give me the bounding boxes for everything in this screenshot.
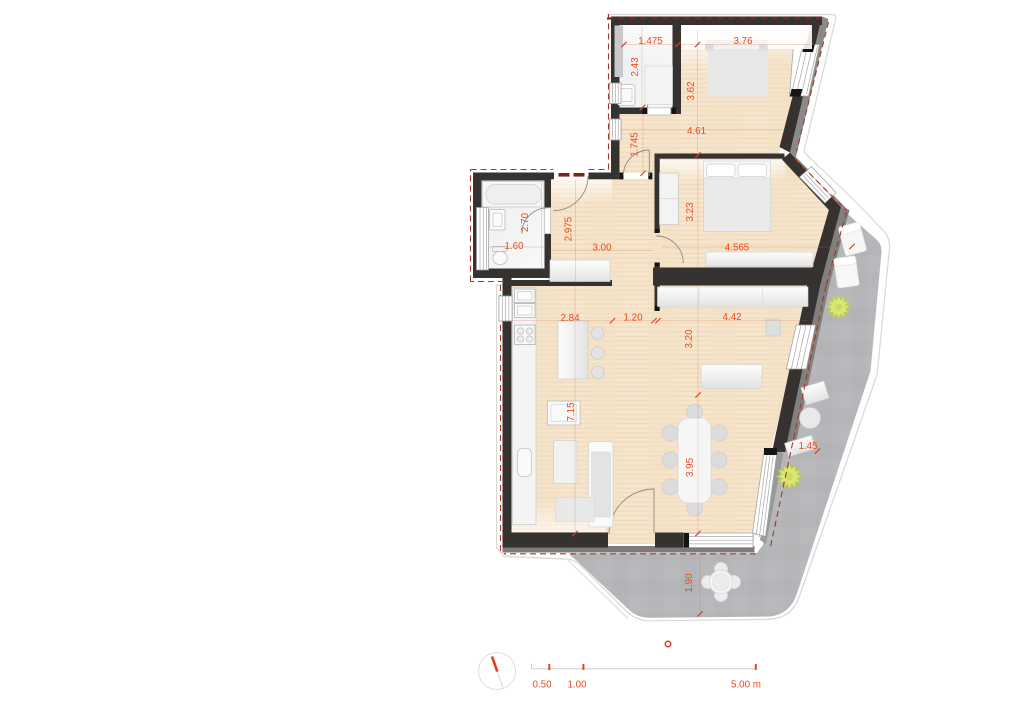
svg-text:2.975: 2.975 [564, 216, 575, 241]
svg-text:3.20: 3.20 [684, 329, 695, 349]
svg-text:3.76: 3.76 [733, 36, 753, 47]
svg-text:1.745: 1.745 [630, 132, 641, 157]
svg-text:3.00: 3.00 [592, 243, 612, 254]
svg-text:4.42: 4.42 [722, 312, 741, 323]
svg-text:4.565: 4.565 [725, 243, 750, 254]
svg-text:1.45: 1.45 [798, 441, 818, 452]
svg-text:2.43: 2.43 [630, 57, 641, 77]
svg-text:3.23: 3.23 [685, 202, 696, 222]
svg-text:1.90: 1.90 [684, 573, 695, 593]
svg-text:7.15: 7.15 [566, 402, 577, 422]
svg-text:3.95: 3.95 [685, 457, 696, 477]
svg-text:1.20: 1.20 [623, 313, 643, 324]
svg-text:1.00: 1.00 [567, 680, 587, 691]
svg-text:0.50: 0.50 [532, 680, 552, 691]
svg-text:4.61: 4.61 [687, 126, 706, 137]
svg-text:2.84: 2.84 [560, 313, 580, 324]
svg-text:1.475: 1.475 [638, 36, 663, 47]
svg-text:5.00 m: 5.00 m [731, 680, 761, 691]
svg-text:3.62: 3.62 [686, 81, 697, 100]
svg-text:2.70: 2.70 [520, 212, 531, 232]
svg-text:1.60: 1.60 [504, 241, 524, 252]
